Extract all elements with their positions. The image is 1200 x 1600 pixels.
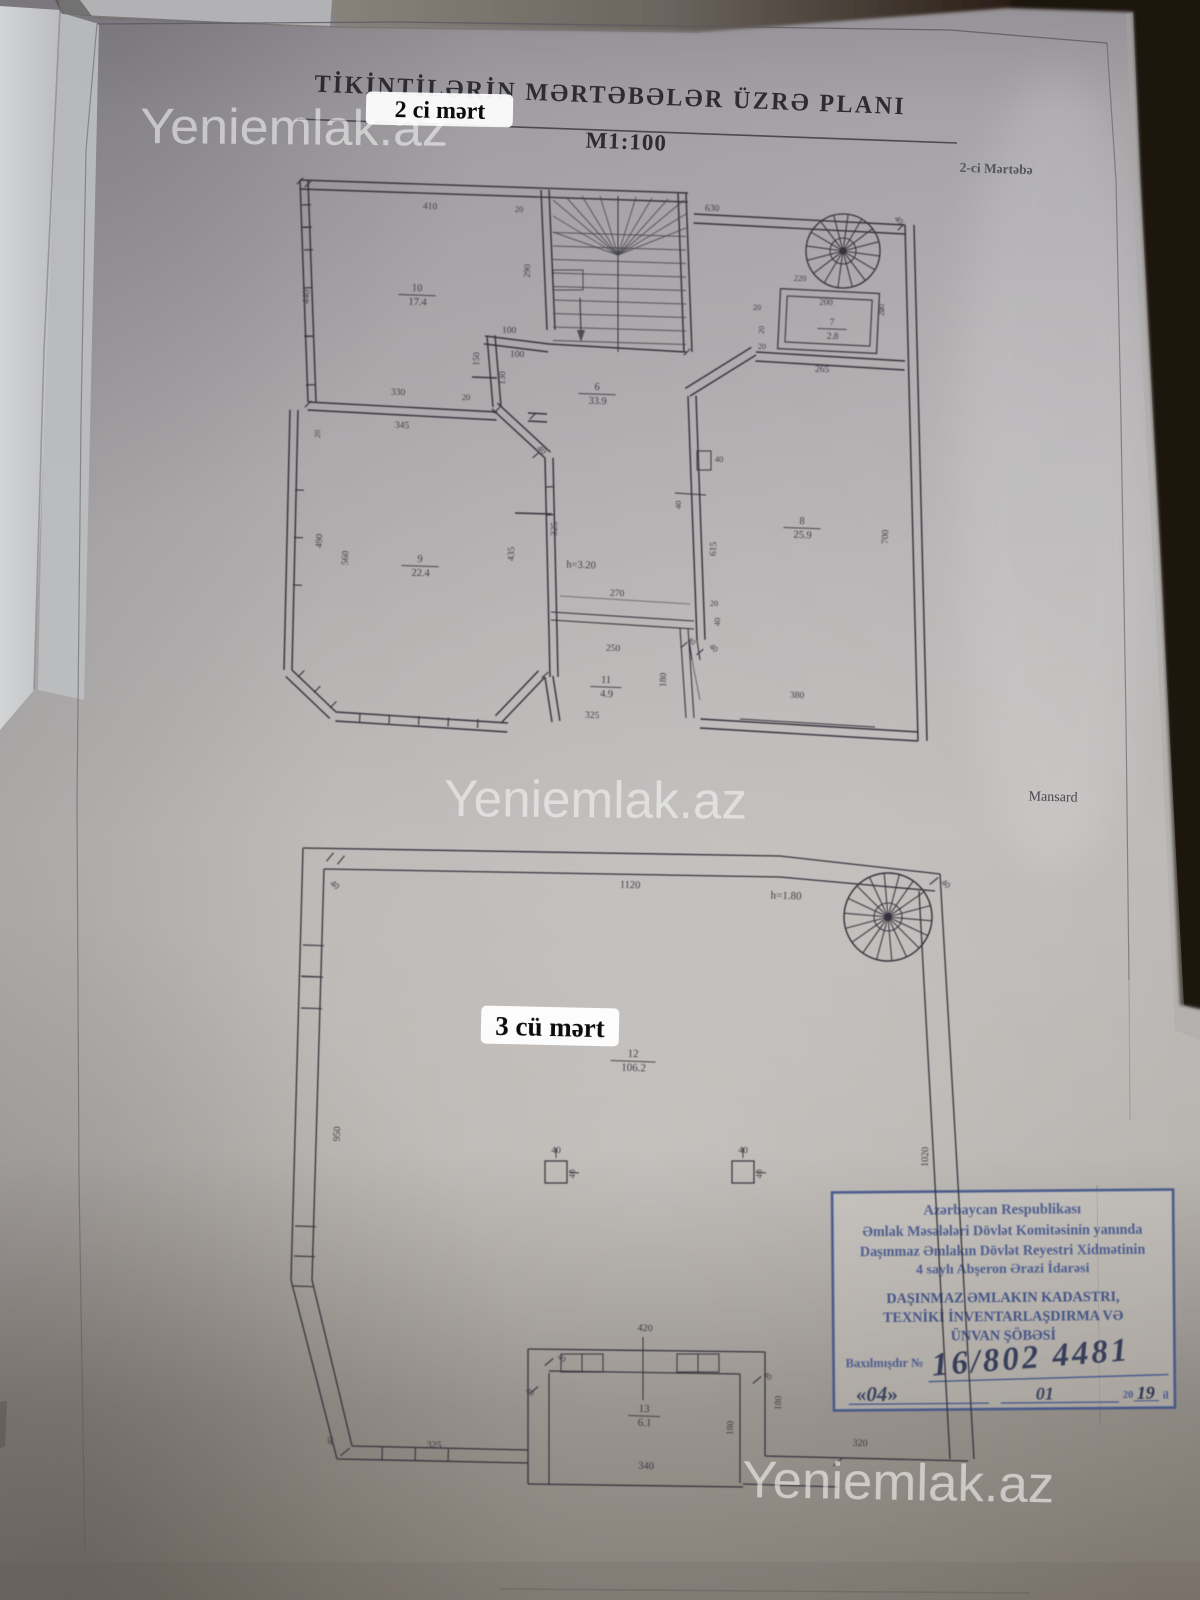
svg-text:2.8: 2.8: [826, 332, 838, 342]
svg-text:40: 40: [673, 500, 683, 509]
svg-text:250: 250: [606, 644, 621, 654]
svg-text:40: 40: [712, 617, 722, 626]
svg-text:320: 320: [852, 1438, 867, 1450]
svg-text:Yeniemlak.az: Yeniemlak.az: [444, 770, 747, 831]
svg-text:DAŞINMAZ ƏMLAKIN KADASTRI,: DAŞINMAZ ƏMLAKIN KADASTRI,: [886, 1289, 1119, 1307]
svg-text:Mansard: Mansard: [1028, 789, 1077, 805]
svg-text:100: 100: [502, 326, 517, 336]
svg-text:8: 8: [799, 516, 805, 527]
svg-text:Daşınmaz Əmlakın Dövlət Reyest: Daşınmaz Əmlakın Dövlət Reyestri Xidməti…: [860, 1242, 1146, 1260]
svg-text:6: 6: [594, 382, 600, 393]
svg-text:20: 20: [313, 430, 322, 438]
svg-text:380: 380: [790, 691, 805, 701]
svg-text:410: 410: [423, 202, 438, 212]
svg-text:200: 200: [819, 297, 833, 307]
svg-text:1020: 1020: [920, 1147, 932, 1167]
svg-text:h=1.80: h=1.80: [770, 889, 802, 902]
svg-text:150: 150: [471, 351, 481, 365]
svg-text:420: 420: [637, 1323, 652, 1335]
svg-text:490: 490: [315, 533, 325, 548]
svg-text:6.1: 6.1: [638, 1417, 652, 1429]
svg-text:13: 13: [638, 1403, 650, 1415]
svg-text:290: 290: [522, 263, 532, 277]
svg-text:265: 265: [815, 365, 830, 375]
svg-text:106.2: 106.2: [621, 1062, 646, 1075]
svg-text:h=3.20: h=3.20: [566, 559, 596, 571]
svg-text:40: 40: [567, 1169, 577, 1179]
svg-text:40: 40: [754, 1169, 764, 1179]
svg-text:20: 20: [877, 304, 886, 312]
svg-text:340: 340: [638, 1461, 654, 1473]
svg-text:M1:100: M1:100: [585, 127, 667, 155]
svg-text:Yeniemlak.az: Yeniemlak.az: [742, 1451, 1055, 1514]
svg-text:270: 270: [610, 589, 625, 599]
svg-text:19: 19: [1137, 1383, 1155, 1403]
svg-text:180: 180: [774, 1395, 784, 1410]
svg-text:180: 180: [726, 1420, 736, 1435]
svg-text:4.9: 4.9: [600, 689, 614, 700]
svg-text:40: 40: [715, 454, 724, 464]
svg-text:325: 325: [550, 521, 560, 536]
svg-text:20: 20: [462, 392, 471, 402]
svg-text:25.9: 25.9: [793, 530, 812, 542]
svg-text:20: 20: [758, 342, 766, 351]
svg-text:11: 11: [601, 675, 612, 686]
svg-text:630: 630: [705, 204, 720, 214]
svg-text:17.4: 17.4: [408, 297, 427, 309]
svg-text:«04»: «04»: [856, 1382, 898, 1406]
svg-text:220: 220: [794, 273, 807, 283]
svg-text:435: 435: [507, 546, 517, 561]
svg-text:20: 20: [757, 326, 766, 334]
svg-text:325: 325: [426, 1440, 441, 1452]
svg-text:7: 7: [830, 318, 835, 328]
svg-text:560: 560: [341, 550, 351, 565]
svg-text:700: 700: [881, 529, 891, 544]
svg-text:100: 100: [510, 350, 525, 360]
svg-text:il: il: [1163, 1391, 1169, 1402]
svg-text:950: 950: [332, 1126, 344, 1141]
svg-text:Azərbaycan Respublikası: Azərbaycan Respublikası: [923, 1201, 1081, 1218]
svg-text:440: 440: [302, 289, 312, 304]
svg-text:325: 325: [585, 711, 600, 721]
svg-text:20: 20: [710, 599, 718, 608]
svg-text:615: 615: [709, 541, 719, 556]
svg-text:20: 20: [1123, 1390, 1134, 1401]
svg-text:01: 01: [1036, 1384, 1054, 1404]
svg-text:10: 10: [412, 283, 423, 294]
svg-text:345: 345: [395, 421, 410, 431]
svg-text:12: 12: [627, 1048, 638, 1060]
svg-text:130: 130: [497, 370, 507, 384]
svg-text:Baxılmışdır №: Baxılmışdır №: [845, 1356, 923, 1371]
svg-text:22.4: 22.4: [411, 568, 430, 580]
svg-text:2-ci Mərtəbə: 2-ci Mərtəbə: [959, 160, 1033, 178]
svg-text:20: 20: [753, 303, 761, 312]
svg-text:TEXNİKİ İNVENTARLAŞDIRMA VƏ: TEXNİKİ İNVENTARLAŞDIRMA VƏ: [883, 1307, 1124, 1326]
svg-text:9: 9: [417, 554, 423, 565]
svg-text:330: 330: [391, 388, 406, 398]
svg-text:33.9: 33.9: [588, 396, 607, 408]
svg-text:2 ci mərt: 2 ci mərt: [394, 97, 485, 125]
svg-text:40: 40: [325, 1436, 335, 1445]
svg-text:3 cü mərt: 3 cü mərt: [495, 1011, 605, 1043]
svg-text:180: 180: [659, 672, 669, 687]
svg-text:4 saylı Abşeron Ərazi İdarəsi: 4 saylı Abşeron Ərazi İdarəsi: [916, 1259, 1090, 1278]
svg-text:1120: 1120: [620, 880, 641, 892]
svg-text:20: 20: [515, 204, 524, 214]
svg-text:Əmlak Məsələləri Dövlət Komitə: Əmlak Məsələləri Dövlət Komitəsinin yanı…: [862, 1222, 1142, 1240]
